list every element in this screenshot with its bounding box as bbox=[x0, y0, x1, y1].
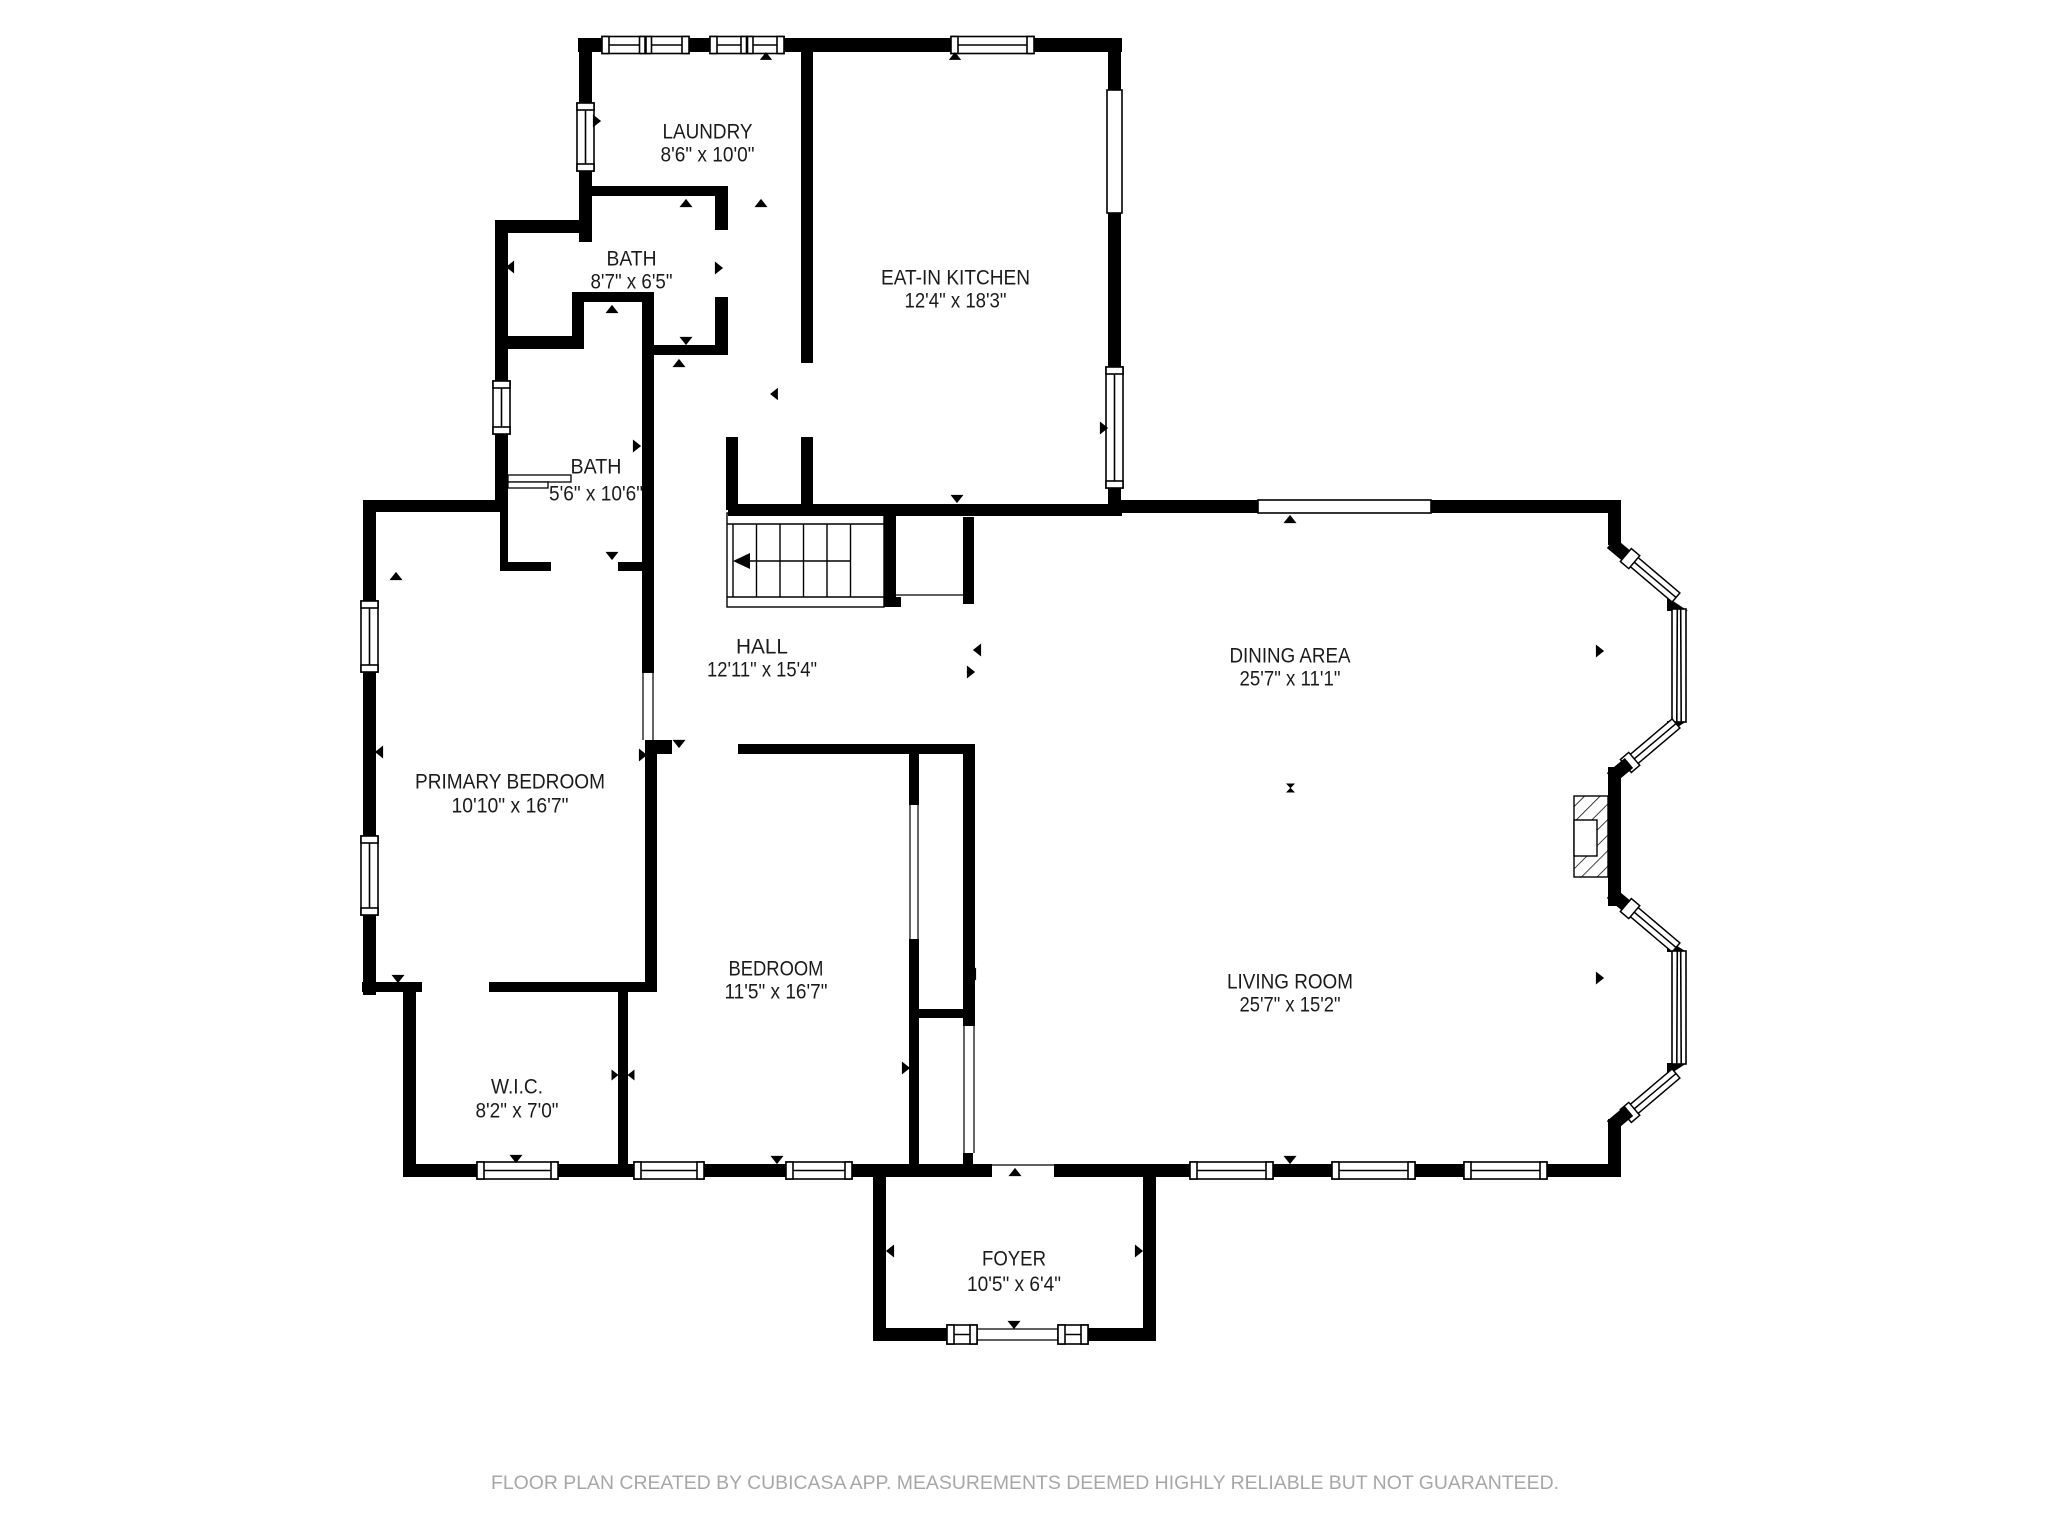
svg-text:BEDROOM: BEDROOM bbox=[729, 957, 824, 981]
svg-text:LAUNDRY: LAUNDRY bbox=[663, 120, 753, 144]
svg-text:10'5" x 6'4": 10'5" x 6'4" bbox=[967, 1272, 1061, 1296]
svg-text:DINING AREA: DINING AREA bbox=[1230, 644, 1352, 668]
svg-text:BATH: BATH bbox=[571, 455, 622, 479]
svg-text:25'7" x 15'2": 25'7" x 15'2" bbox=[1240, 993, 1341, 1017]
svg-text:8'2" x 7'0": 8'2" x 7'0" bbox=[476, 1099, 559, 1123]
svg-text:PRIMARY BEDROOM: PRIMARY BEDROOM bbox=[415, 770, 605, 794]
svg-text:12'4" x 18'3": 12'4" x 18'3" bbox=[905, 289, 1007, 313]
svg-text:LIVING ROOM: LIVING ROOM bbox=[1227, 970, 1353, 994]
svg-text:8'7" x 6'5": 8'7" x 6'5" bbox=[591, 270, 673, 294]
svg-text:12'11" x 15'4": 12'11" x 15'4" bbox=[707, 658, 817, 682]
svg-text:8'6" x 10'0": 8'6" x 10'0" bbox=[661, 143, 755, 167]
svg-text:W.I.C.: W.I.C. bbox=[491, 1075, 543, 1099]
svg-text:5'6" x 10'6": 5'6" x 10'6" bbox=[549, 482, 643, 506]
svg-text:FLOOR PLAN CREATED BY CUBICASA: FLOOR PLAN CREATED BY CUBICASA APP. MEAS… bbox=[491, 1472, 1559, 1494]
svg-text:10'10" x 16'7": 10'10" x 16'7" bbox=[452, 794, 569, 818]
svg-text:HALL: HALL bbox=[736, 635, 788, 659]
svg-text:BATH: BATH bbox=[607, 247, 657, 271]
svg-text:EAT-IN KITCHEN: EAT-IN KITCHEN bbox=[881, 266, 1030, 290]
svg-text:25'7" x 11'1": 25'7" x 11'1" bbox=[1240, 667, 1341, 691]
svg-text:FOYER: FOYER bbox=[982, 1247, 1046, 1271]
svg-text:11'5" x 16'7": 11'5" x 16'7" bbox=[725, 980, 828, 1004]
